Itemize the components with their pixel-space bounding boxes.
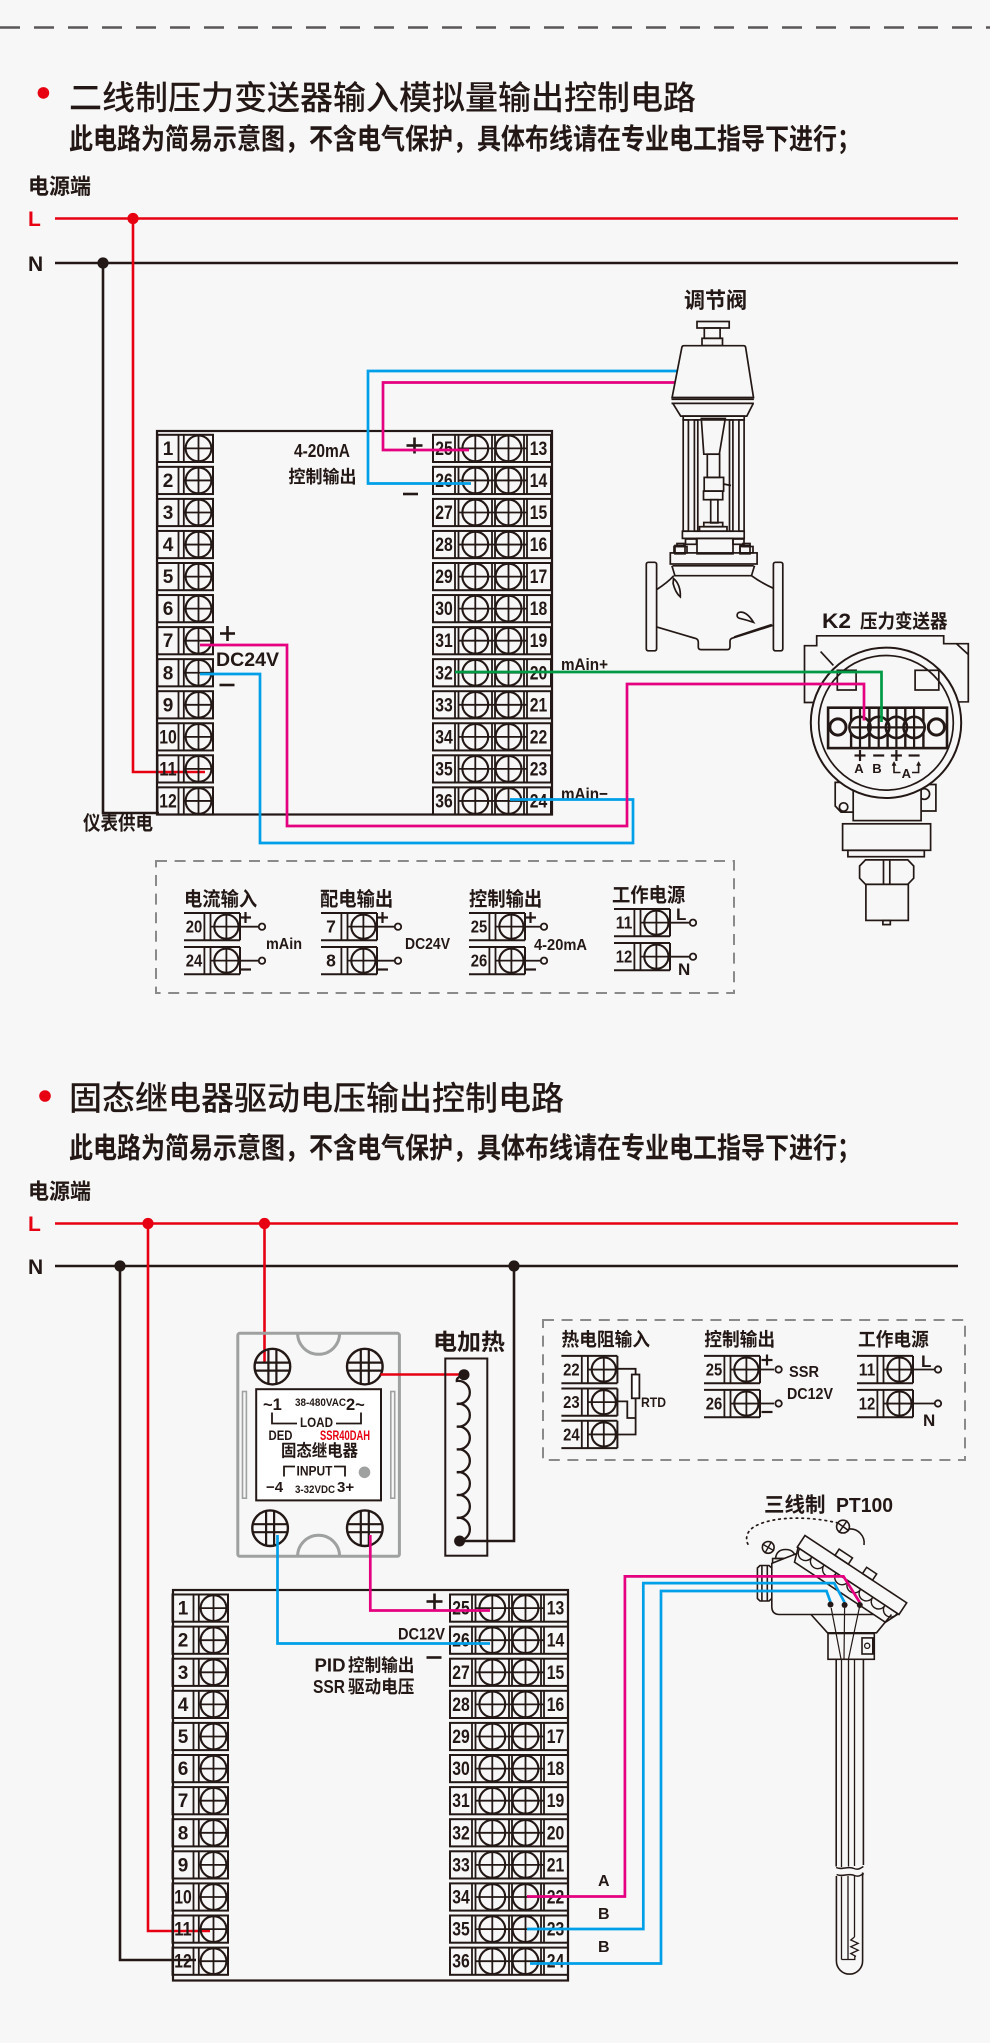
svg-text:17: 17 <box>530 567 548 588</box>
svg-text:8: 8 <box>163 663 174 684</box>
svg-text:35: 35 <box>452 1920 470 1941</box>
svg-text:DC12V: DC12V <box>398 1625 446 1644</box>
svg-text:22: 22 <box>530 727 548 748</box>
svg-text:15: 15 <box>530 503 548 524</box>
svg-text:8: 8 <box>178 1823 189 1844</box>
svg-text:13: 13 <box>530 439 548 460</box>
svg-text:38-480VAC: 38-480VAC <box>295 1397 346 1409</box>
svg-text:18: 18 <box>547 1759 565 1780</box>
svg-text:10: 10 <box>159 727 177 748</box>
svg-text:14: 14 <box>547 1631 565 1652</box>
svg-text:12: 12 <box>859 1394 876 1414</box>
svg-text:8: 8 <box>326 951 336 971</box>
svg-text:33: 33 <box>435 695 453 716</box>
svg-text:2: 2 <box>178 1631 189 1652</box>
svg-text:5: 5 <box>178 1727 189 1748</box>
svg-text:22: 22 <box>547 1888 565 1909</box>
svg-text:SSR: SSR <box>789 1364 819 1381</box>
svg-text:19: 19 <box>547 1791 565 1812</box>
svg-text:7: 7 <box>326 917 336 937</box>
svg-text:11: 11 <box>159 759 177 780</box>
svg-text:30: 30 <box>452 1759 470 1780</box>
svg-text:N: N <box>678 960 690 979</box>
svg-text:DC24V: DC24V <box>216 650 279 671</box>
svg-text:28: 28 <box>435 535 453 556</box>
svg-text:11: 11 <box>616 913 633 933</box>
svg-text:B: B <box>598 1939 610 1956</box>
svg-text:DC12V: DC12V <box>787 1386 833 1403</box>
svg-text:27: 27 <box>452 1663 470 1684</box>
svg-text:1: 1 <box>163 439 174 460</box>
svg-text:33: 33 <box>452 1855 470 1876</box>
svg-text:4-20mA: 4-20mA <box>534 937 587 954</box>
svg-text:22: 22 <box>563 1360 580 1380</box>
svg-text:14: 14 <box>530 471 548 492</box>
svg-text:B: B <box>872 761 881 776</box>
svg-text:35: 35 <box>435 759 453 780</box>
svg-text:36: 36 <box>452 1952 470 1973</box>
svg-text:9: 9 <box>163 695 174 716</box>
svg-text:N: N <box>28 1256 43 1279</box>
svg-text:25: 25 <box>452 1599 470 1620</box>
svg-text:L: L <box>28 1213 41 1236</box>
svg-text:19: 19 <box>530 631 548 652</box>
svg-text:3: 3 <box>178 1663 189 1684</box>
svg-text:15: 15 <box>547 1663 565 1684</box>
svg-text:~1: ~1 <box>263 1396 282 1414</box>
svg-text:SSR40DAH: SSR40DAH <box>320 1428 370 1443</box>
svg-text:26: 26 <box>452 1631 470 1652</box>
svg-text:DC24V: DC24V <box>405 936 450 953</box>
svg-text:7: 7 <box>163 631 174 652</box>
svg-text:2: 2 <box>163 471 174 492</box>
svg-text:3+: 3+ <box>337 1479 354 1496</box>
svg-text:INPUT: INPUT <box>297 1464 334 1479</box>
svg-text:29: 29 <box>452 1727 470 1748</box>
svg-text:PT100: PT100 <box>836 1495 893 1517</box>
svg-text:27: 27 <box>435 503 453 524</box>
svg-text:K2: K2 <box>822 610 851 633</box>
svg-text:N: N <box>28 253 43 276</box>
svg-text:13: 13 <box>547 1599 565 1620</box>
svg-text:4: 4 <box>178 1695 189 1716</box>
svg-text:31: 31 <box>435 631 453 652</box>
svg-text:23: 23 <box>530 759 548 780</box>
svg-text:25: 25 <box>471 917 488 937</box>
svg-text:12: 12 <box>159 791 177 812</box>
svg-text:34: 34 <box>435 727 453 748</box>
svg-text:DED: DED <box>269 1428 293 1443</box>
svg-text:PID: PID <box>315 1656 346 1676</box>
svg-text:26: 26 <box>471 951 488 971</box>
svg-text:5: 5 <box>163 567 174 588</box>
svg-text:4-20mA: 4-20mA <box>294 441 350 461</box>
svg-text:24: 24 <box>186 951 203 971</box>
svg-text:2~: 2~ <box>346 1396 365 1414</box>
svg-text:mAin: mAin <box>266 936 302 953</box>
svg-text:20: 20 <box>186 917 203 937</box>
svg-text:34: 34 <box>452 1888 470 1909</box>
svg-text:23: 23 <box>563 1392 580 1412</box>
svg-text:B: B <box>598 1906 610 1923</box>
svg-text:RTD: RTD <box>641 1394 666 1410</box>
svg-text:6: 6 <box>178 1759 189 1780</box>
svg-text:25: 25 <box>706 1360 723 1380</box>
svg-text:31: 31 <box>452 1791 470 1812</box>
svg-text:36: 36 <box>435 791 453 812</box>
svg-text:20: 20 <box>547 1823 565 1844</box>
svg-text:24: 24 <box>563 1424 580 1444</box>
svg-text:32: 32 <box>452 1823 470 1844</box>
svg-text:L: L <box>28 208 41 231</box>
svg-text:18: 18 <box>530 599 548 620</box>
svg-text:1: 1 <box>178 1599 189 1620</box>
svg-text:26: 26 <box>706 1394 723 1414</box>
svg-text:21: 21 <box>530 695 548 716</box>
svg-text:9: 9 <box>178 1855 189 1876</box>
svg-text:11: 11 <box>174 1920 192 1941</box>
svg-text:21: 21 <box>547 1855 565 1876</box>
svg-text:16: 16 <box>547 1695 565 1716</box>
svg-text:N: N <box>923 1411 935 1430</box>
svg-text:26: 26 <box>435 471 453 492</box>
svg-text:30: 30 <box>435 599 453 620</box>
svg-text:6: 6 <box>163 599 174 620</box>
svg-text:A: A <box>902 766 912 781</box>
svg-text:3: 3 <box>163 503 174 524</box>
svg-text:11: 11 <box>859 1360 876 1380</box>
svg-text:−4: −4 <box>266 1479 284 1496</box>
svg-text:3-32VDC: 3-32VDC <box>295 1484 335 1496</box>
svg-text:16: 16 <box>530 535 548 556</box>
svg-text:12: 12 <box>616 947 633 967</box>
svg-text:17: 17 <box>547 1727 565 1748</box>
svg-text:12: 12 <box>174 1952 192 1973</box>
svg-text:28: 28 <box>452 1695 470 1716</box>
svg-text:7: 7 <box>178 1791 189 1812</box>
svg-text:L: L <box>921 1352 931 1371</box>
svg-text:32: 32 <box>435 663 453 684</box>
svg-text:10: 10 <box>174 1888 192 1909</box>
svg-text:L: L <box>676 905 686 924</box>
svg-text:4: 4 <box>163 535 174 556</box>
svg-text:A: A <box>598 1873 610 1890</box>
svg-text:SSR: SSR <box>313 1677 345 1697</box>
svg-text:A: A <box>854 761 864 776</box>
svg-text:24: 24 <box>530 791 548 812</box>
svg-text:29: 29 <box>435 567 453 588</box>
svg-text:20: 20 <box>530 663 548 684</box>
